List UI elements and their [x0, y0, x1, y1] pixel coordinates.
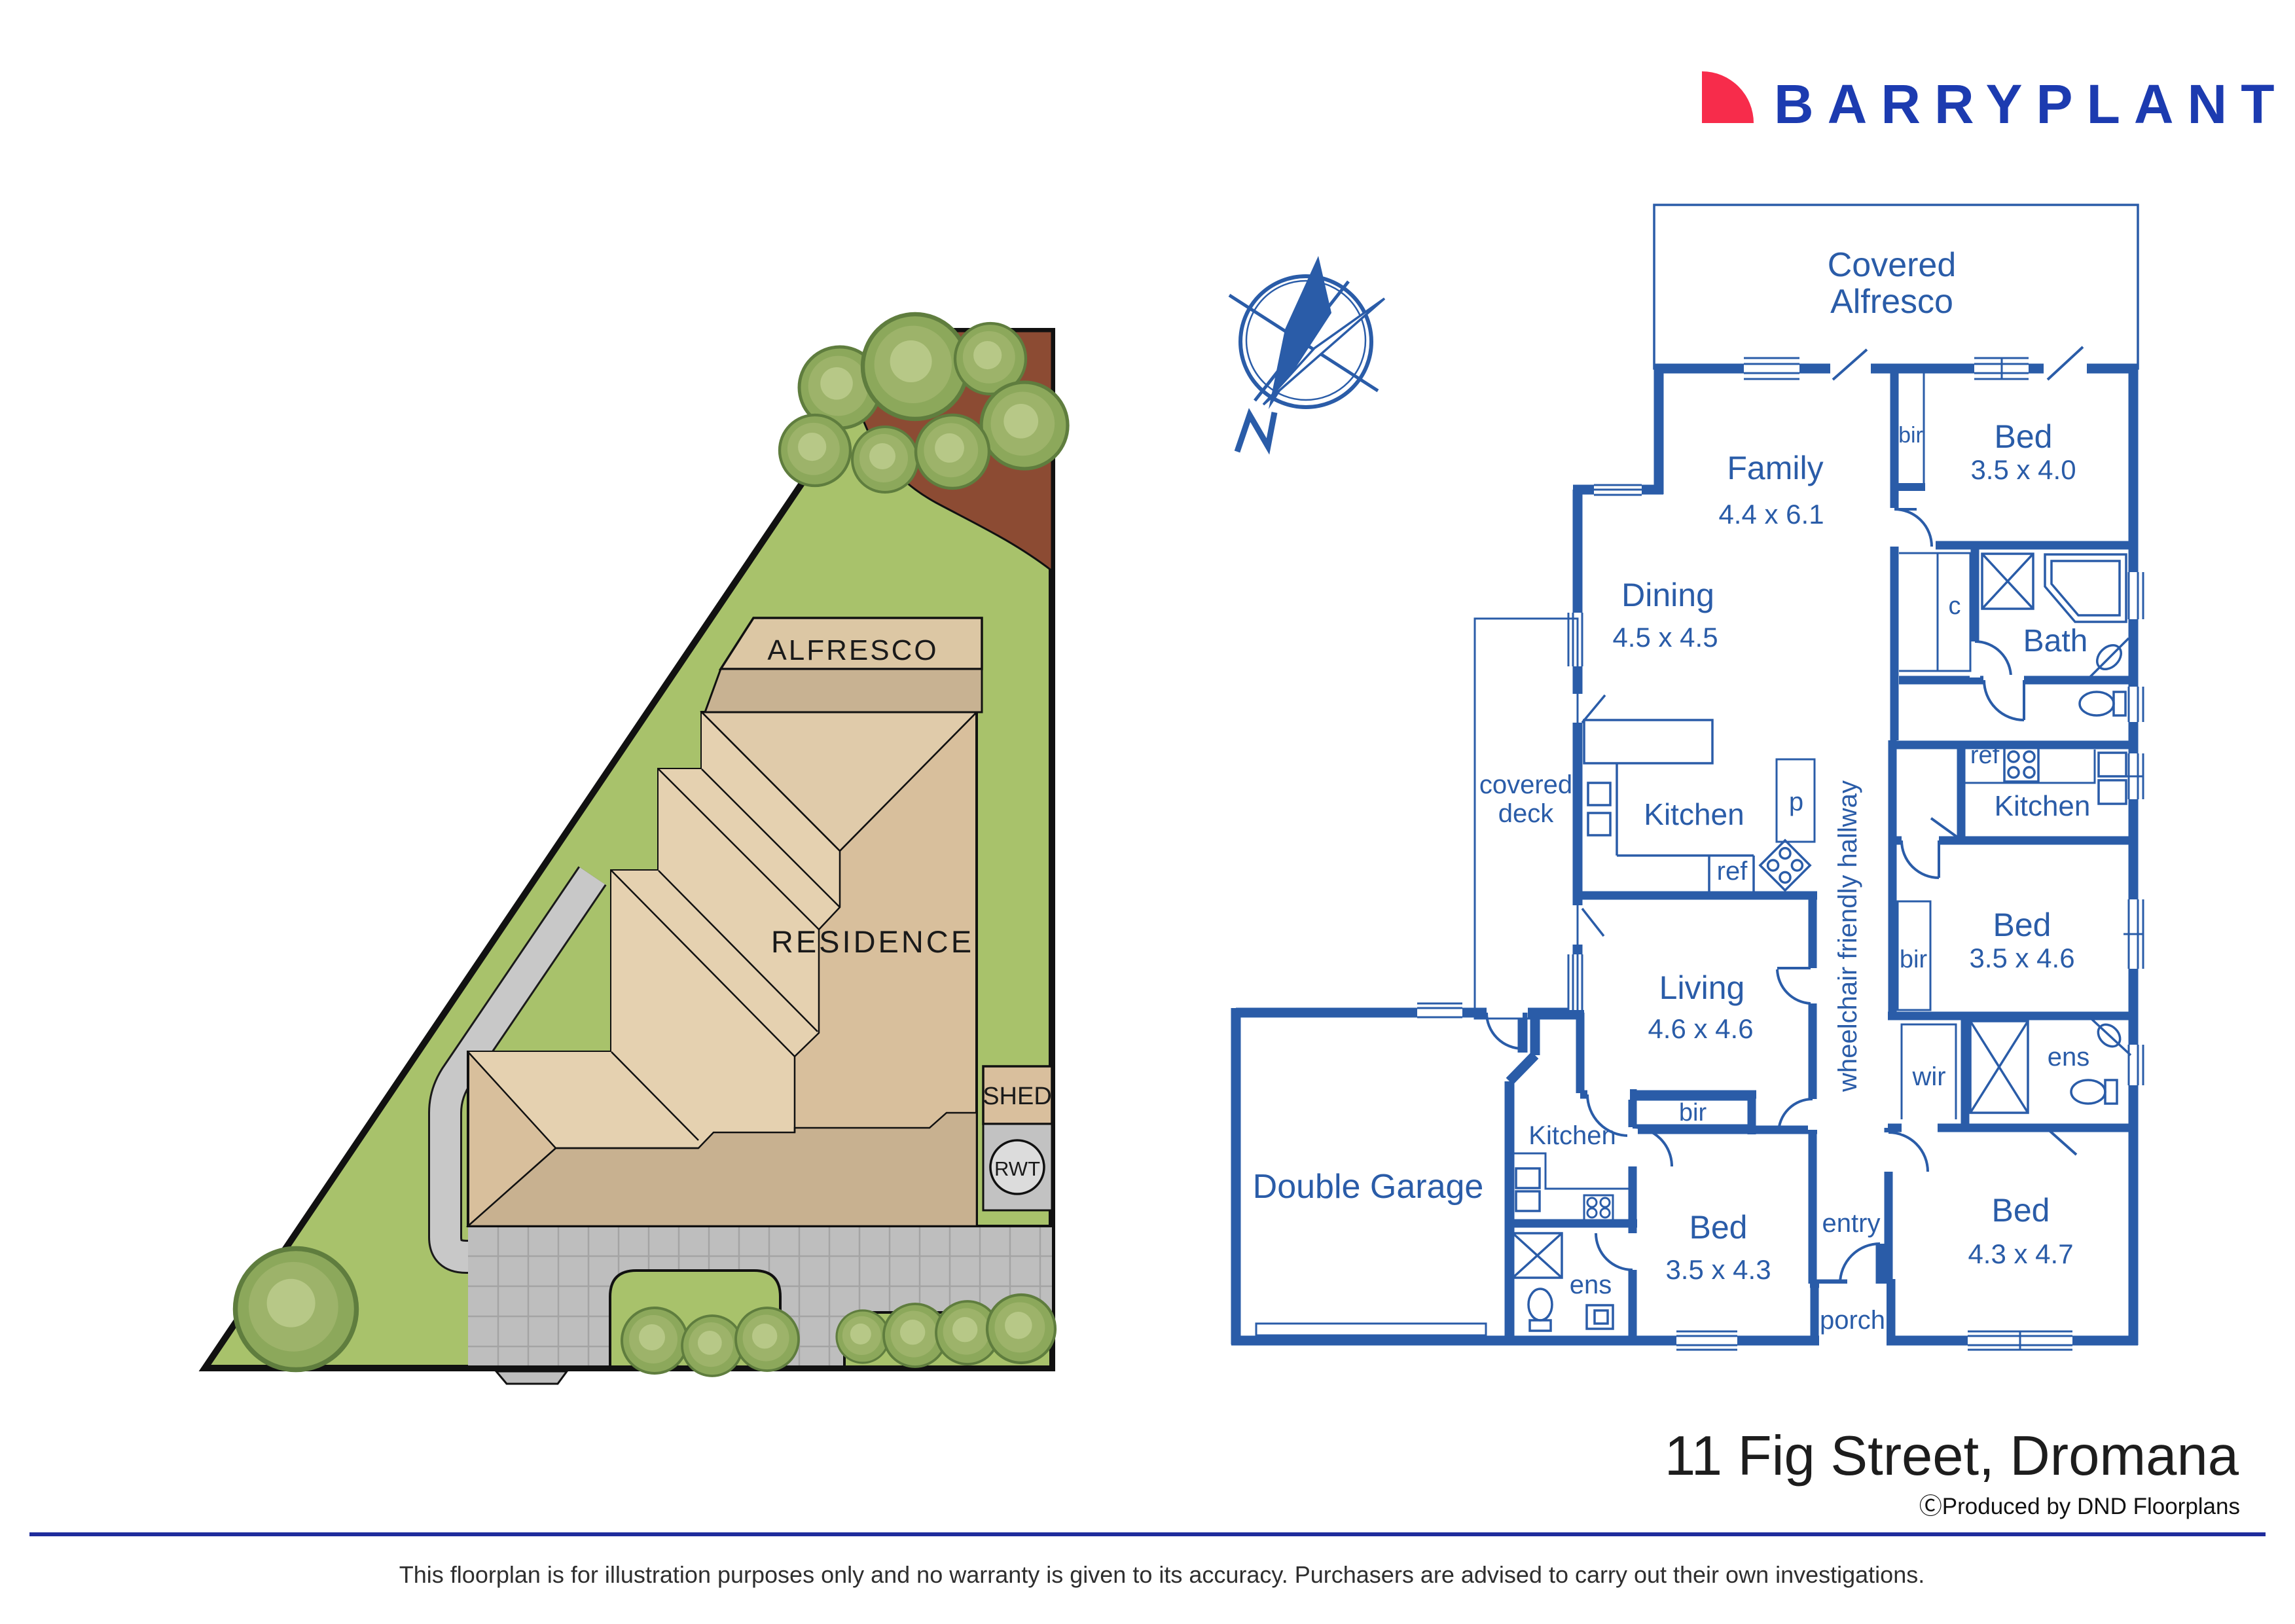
svg-text:Kitchen: Kitchen	[1644, 797, 1744, 831]
svg-text:deck: deck	[1498, 799, 1554, 828]
svg-text:3.5 x 4.0: 3.5 x 4.0	[1970, 454, 2076, 485]
svg-text:This floorplan is for illustra: This floorplan is for illustration purpo…	[399, 1561, 1925, 1588]
svg-text:p: p	[1789, 787, 1803, 816]
svg-text:ens: ens	[2048, 1043, 2090, 1072]
svg-text:ens: ens	[1570, 1271, 1612, 1299]
svg-text:wir: wir	[1911, 1062, 1945, 1091]
svg-text:Double Garage: Double Garage	[1253, 1168, 1484, 1206]
svg-text:ALFRESCO: ALFRESCO	[767, 634, 938, 666]
svg-text:Bed: Bed	[1992, 1192, 2050, 1229]
svg-text:Bath: Bath	[2023, 624, 2088, 659]
svg-text:SHED: SHED	[983, 1083, 1052, 1110]
svg-text:Bed: Bed	[1993, 907, 2051, 943]
svg-text:BARRYPLANT: BARRYPLANT	[1774, 73, 2288, 135]
svg-text:ⒸProduced by DND Floorplans: ⒸProduced by DND Floorplans	[1919, 1494, 2240, 1519]
svg-text:c: c	[1949, 592, 1961, 620]
svg-text:Kitchen: Kitchen	[1995, 790, 2091, 822]
svg-text:Covered: Covered	[1828, 246, 1957, 284]
svg-text:ref: ref	[1717, 857, 1748, 886]
svg-text:covered: covered	[1479, 770, 1572, 799]
svg-text:11 Fig Street, Dromana: 11 Fig Street, Dromana	[1665, 1425, 2239, 1487]
svg-text:Bed: Bed	[1995, 418, 2053, 455]
svg-text:entry: entry	[1822, 1209, 1881, 1238]
svg-text:Alfresco: Alfresco	[1830, 283, 1953, 321]
svg-text:4.4 x 6.1: 4.4 x 6.1	[1718, 499, 1824, 530]
svg-text:Bed: Bed	[1690, 1209, 1748, 1246]
svg-text:Living: Living	[1659, 969, 1745, 1006]
svg-text:bir: bir	[1900, 946, 1928, 973]
svg-text:3.5 x 4.3: 3.5 x 4.3	[1665, 1254, 1771, 1285]
svg-text:bir: bir	[1679, 1099, 1707, 1127]
svg-text:ref: ref	[1970, 742, 2000, 769]
svg-text:3.5 x 4.6: 3.5 x 4.6	[1969, 943, 2074, 973]
svg-text:bir: bir	[1898, 423, 1923, 448]
svg-text:4.5 x 4.5: 4.5 x 4.5	[1612, 622, 1718, 653]
svg-text:Family: Family	[1727, 450, 1823, 486]
svg-text:wheelchair friendly hallway: wheelchair friendly hallway	[1834, 780, 1862, 1092]
svg-text:porch: porch	[1820, 1306, 1885, 1335]
svg-text:RWT: RWT	[994, 1157, 1040, 1180]
svg-text:RESIDENCE: RESIDENCE	[771, 924, 974, 959]
svg-text:4.6 x 4.6: 4.6 x 4.6	[1648, 1013, 1753, 1044]
svg-text:Kitchen: Kitchen	[1528, 1121, 1616, 1150]
svg-text:Dining: Dining	[1621, 577, 1714, 613]
svg-text:4.3 x 4.7: 4.3 x 4.7	[1968, 1238, 2073, 1269]
